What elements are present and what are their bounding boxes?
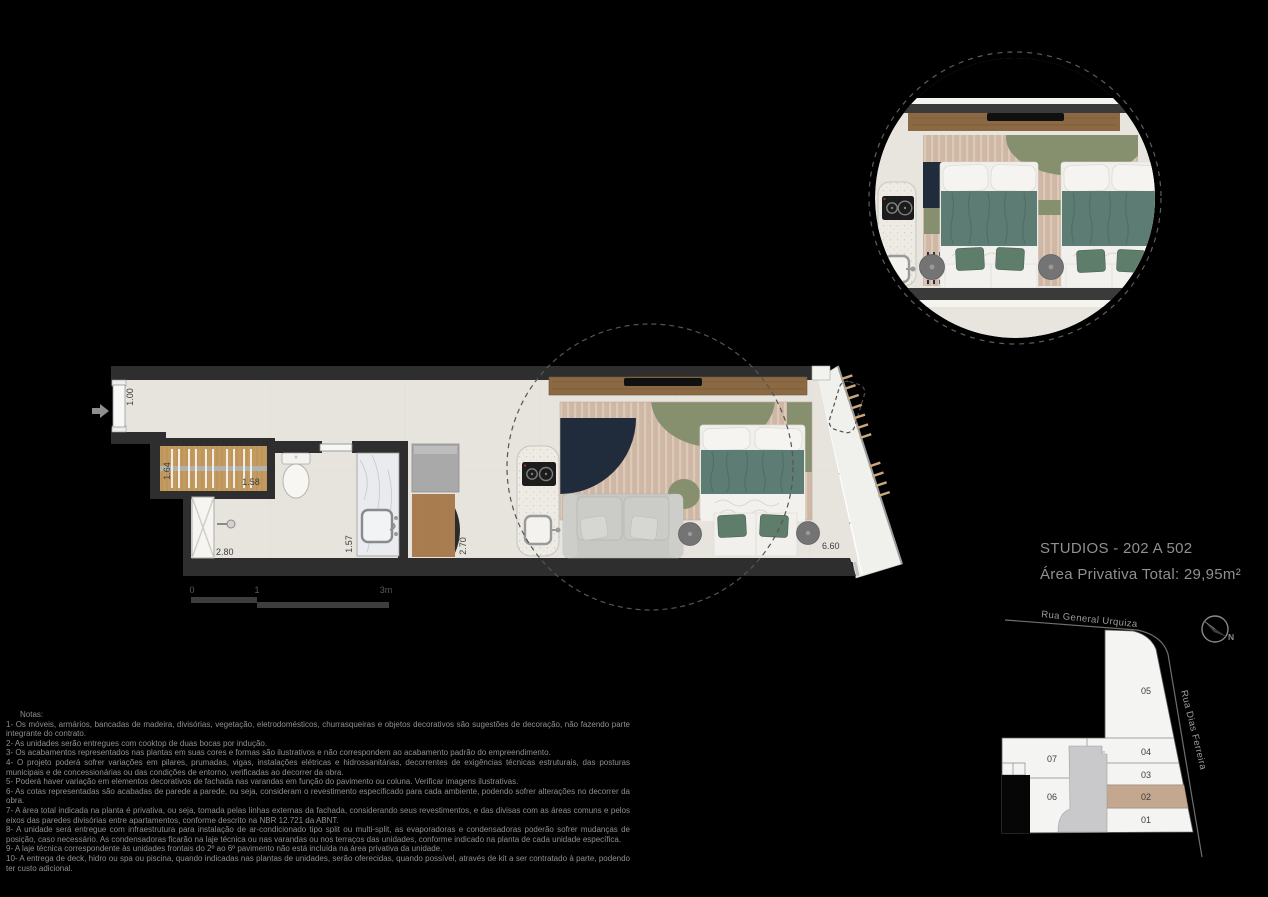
dim-entry-hall: 1.00 [125, 388, 135, 406]
scale-tick-3m: 3m [380, 585, 393, 595]
detail-island [878, 182, 916, 286]
wall-jamb [812, 366, 830, 380]
dim-wardrobe-width: 1.58 [242, 477, 260, 487]
dim-kitchen: 2.70 [458, 537, 468, 555]
note-item: 3- Os acabamentos representados nas plan… [6, 748, 630, 758]
bathroom-counter [357, 453, 399, 556]
scale-tick-0: 0 [189, 585, 194, 595]
unit-label-07: 07 [1047, 754, 1057, 764]
note-item: 5- Poderá haver variação em elementos de… [6, 777, 630, 787]
bathroom-door [320, 444, 352, 451]
unit-label-01: 01 [1141, 815, 1151, 825]
note-item: 1- Os móveis, armários, bancadas de made… [6, 720, 630, 739]
site-plan: 05 04 03 02 01 07 06 Rua General Urquiza… [1002, 609, 1234, 857]
note-item: 8- A unidade será entregue com infraestr… [6, 825, 630, 844]
toilet [282, 453, 310, 498]
entry-arrow-icon [92, 404, 109, 418]
dim-living: 6.60 [822, 541, 840, 551]
bed [700, 425, 805, 556]
floor-plan: 1.00 1.64 1.58 2.80 1.57 2.70 6.60 0 1 3… [92, 324, 902, 610]
scale-bar: 0 1 3m [189, 585, 392, 608]
unit-label-03: 03 [1141, 770, 1151, 780]
scale-tick-1: 1 [254, 585, 259, 595]
street-label-right: Rua Dias Ferreira [1178, 689, 1209, 771]
sofa [563, 494, 683, 558]
kitchen-counter [412, 444, 460, 557]
page-subtitle: Área Privativa Total: 29,95m² [1040, 562, 1241, 588]
site-void [1002, 775, 1030, 833]
notes: Notas: 1- Os móveis, armários, bancadas … [6, 710, 630, 873]
notes-heading: Notas: [6, 710, 630, 720]
note-item: 7- A área total indicada na planta é pri… [6, 806, 630, 825]
north-label: N [1228, 632, 1234, 642]
note-item: 10- A entrega de deck, hidro ou spa ou p… [6, 854, 630, 873]
kitchen-island [517, 446, 561, 556]
unit-label-02: 02 [1141, 792, 1151, 802]
dim-bath-counter: 1.57 [344, 535, 354, 553]
bed-cushion [759, 514, 788, 537]
island-sink [525, 516, 551, 544]
detail-tv-console [908, 113, 1120, 131]
tv [624, 378, 702, 386]
title-block: STUDIOS - 202 A 502 Área Privativa Total… [1040, 536, 1241, 588]
page-title: STUDIOS - 202 A 502 [1040, 536, 1241, 562]
dim-wardrobe-depth: 1.64 [162, 462, 172, 480]
note-item: 9- A laje técnica correspondente às unid… [6, 844, 630, 854]
entry-door [112, 380, 126, 432]
note-item: 6- As cotas representadas são acabadas d… [6, 787, 630, 806]
north-arrow-icon: N [1202, 616, 1234, 642]
bed-cushion [717, 514, 746, 537]
detail-circle [869, 50, 1162, 344]
unit-label-06: 06 [1047, 792, 1057, 802]
note-item: 2- As unidades serão entregues com cookt… [6, 739, 630, 749]
note-item: 4- O projeto poderá sofrer variações em … [6, 758, 630, 777]
dim-bathroom: 2.80 [216, 547, 234, 557]
unit-label-05: 05 [1141, 686, 1151, 696]
page: 1.00 1.64 1.58 2.80 1.57 2.70 6.60 0 1 3… [0, 0, 1268, 897]
bathroom-sink [362, 510, 392, 542]
unit-label-04: 04 [1141, 747, 1151, 757]
shower [192, 497, 214, 558]
